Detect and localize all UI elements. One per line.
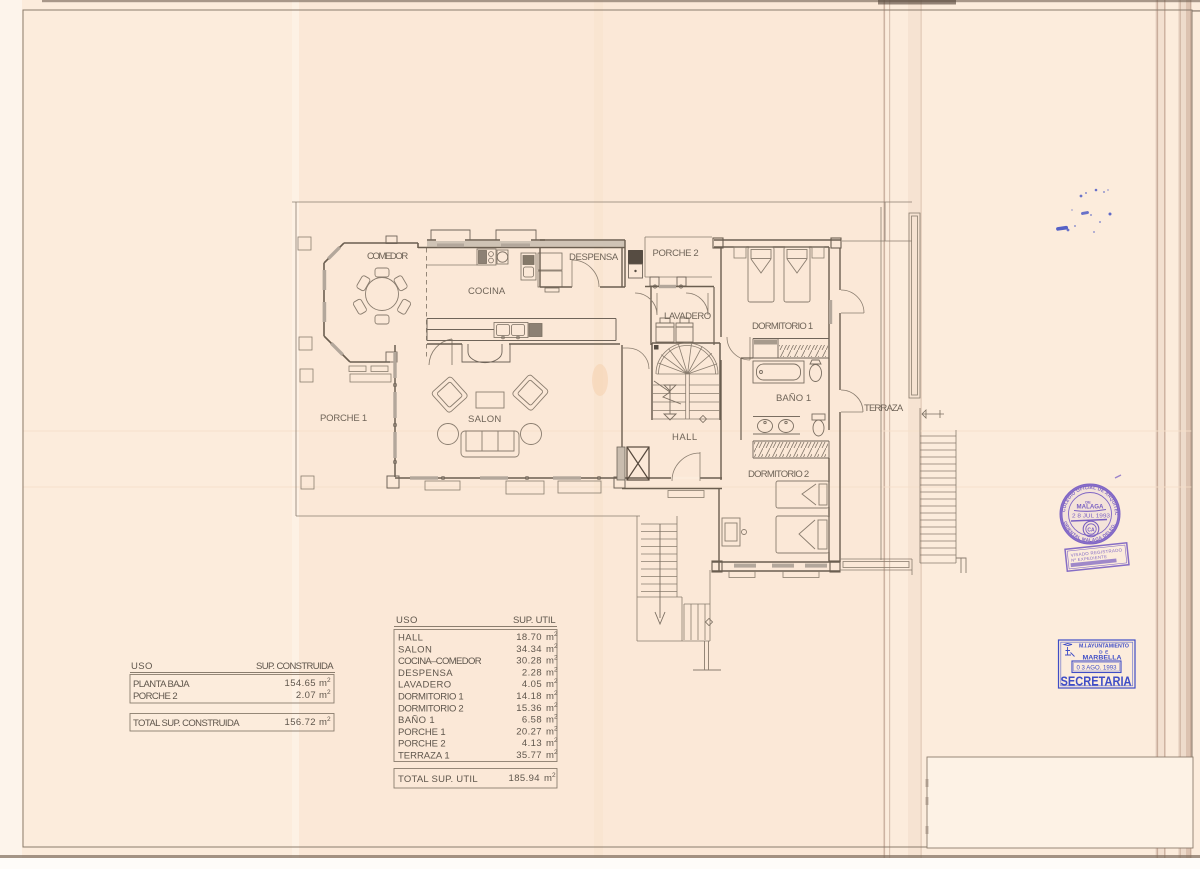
svg-text:COMEDOR: COMEDOR: [367, 251, 409, 262]
svg-text:2: 2: [327, 689, 331, 696]
svg-text:2: 2: [554, 725, 558, 732]
svg-text:2: 2: [554, 631, 558, 638]
svg-text:m: m: [546, 632, 554, 643]
svg-text:4.05: 4.05: [522, 679, 542, 690]
svg-text:15.36: 15.36: [516, 703, 542, 714]
svg-text:m: m: [546, 703, 554, 714]
svg-text:COCINA–COMEDOR: COCINA–COMEDOR: [398, 656, 482, 667]
svg-text:2: 2: [327, 716, 331, 723]
svg-text:PORCHE 1: PORCHE 1: [398, 727, 446, 738]
svg-text:18.70: 18.70: [516, 632, 542, 643]
svg-text:34.34: 34.34: [516, 644, 542, 655]
svg-text:m: m: [319, 717, 327, 728]
svg-text:TOTAL SUP. UTIL: TOTAL SUP. UTIL: [398, 774, 478, 785]
svg-text:35.77: 35.77: [516, 750, 542, 761]
svg-text:DESPENSA: DESPENSA: [398, 668, 453, 679]
svg-text:2: 2: [554, 737, 558, 744]
svg-text:m: m: [319, 678, 327, 689]
svg-text:m: m: [319, 690, 327, 701]
svg-text:m: m: [546, 656, 554, 667]
svg-text:2.28: 2.28: [522, 667, 542, 678]
svg-text:PORCHE 2: PORCHE 2: [398, 739, 446, 750]
svg-text:USO: USO: [131, 661, 153, 672]
svg-text:2.07: 2.07: [296, 690, 316, 701]
svg-text:SUP. CONSTRUIDA: SUP. CONSTRUIDA: [256, 661, 334, 672]
svg-text:m: m: [546, 679, 554, 690]
svg-text:m: m: [546, 738, 554, 749]
svg-text:156.72: 156.72: [285, 717, 316, 728]
svg-text:2: 2: [554, 690, 558, 697]
svg-text:TOTAL SUP. CONSTRUIDA: TOTAL SUP. CONSTRUIDA: [133, 718, 240, 729]
svg-text:2: 2: [327, 677, 331, 684]
svg-text:2: 2: [554, 714, 558, 721]
svg-text:PORCHE 2: PORCHE 2: [653, 248, 700, 259]
svg-text:DORMITORIO 1: DORMITORIO 1: [752, 321, 814, 332]
svg-text:2: 2: [554, 666, 558, 673]
svg-text:m: m: [544, 773, 552, 784]
svg-text:4.13: 4.13: [522, 738, 542, 749]
svg-text:SALON: SALON: [398, 644, 432, 655]
svg-text:0 3 AGO. 1993: 0 3 AGO. 1993: [1077, 665, 1118, 672]
svg-text:30.28: 30.28: [516, 656, 542, 667]
svg-text:m: m: [546, 667, 554, 678]
svg-text:PORCHE 1: PORCHE 1: [320, 413, 368, 424]
svg-text:DORMITORIO 1: DORMITORIO 1: [398, 692, 464, 703]
svg-text:TERRAZA: TERRAZA: [864, 403, 904, 414]
svg-text:185.94: 185.94: [509, 773, 540, 784]
svg-text:LAVADERO: LAVADERO: [398, 680, 452, 691]
svg-text:DORMITORIO 2: DORMITORIO 2: [748, 469, 810, 480]
svg-text:SECRETARIA: SECRETARIA: [1061, 675, 1132, 689]
svg-text:m: m: [546, 715, 554, 726]
svg-text:2: 2: [554, 702, 558, 709]
svg-text:BAÑO 1: BAÑO 1: [776, 393, 812, 404]
svg-text:2: 2: [554, 678, 558, 685]
svg-text:DESPENSA: DESPENSA: [569, 252, 619, 263]
svg-text:TERRAZA 1: TERRAZA 1: [398, 751, 450, 762]
svg-text:M.I.AYUNTAMIENTO: M.I.AYUNTAMIENTO: [1079, 644, 1129, 650]
svg-text:MALAGA: MALAGA: [1077, 505, 1105, 511]
svg-text:PORCHE 2: PORCHE 2: [133, 691, 178, 702]
svg-text:PLANTA BAJA: PLANTA BAJA: [133, 679, 190, 690]
svg-text:2: 2: [554, 643, 558, 650]
svg-text:m: m: [546, 750, 554, 761]
svg-text:20.27: 20.27: [516, 726, 542, 737]
svg-text:2 8 JUL 1993: 2 8 JUL 1993: [1072, 514, 1110, 520]
svg-text:BAÑO 1: BAÑO 1: [398, 715, 435, 726]
svg-text:HALL: HALL: [672, 432, 698, 443]
svg-text:m: m: [546, 691, 554, 702]
svg-text:154.65: 154.65: [285, 678, 316, 689]
svg-text:m: m: [546, 726, 554, 737]
svg-text:HALL: HALL: [398, 633, 423, 644]
svg-text:2: 2: [554, 749, 558, 756]
svg-text:14.18: 14.18: [516, 691, 542, 702]
svg-text:2: 2: [552, 772, 556, 779]
svg-text:COCINA: COCINA: [468, 286, 506, 297]
svg-text:DORMITORIO 2: DORMITORIO 2: [398, 703, 464, 714]
svg-text:USO: USO: [396, 615, 418, 626]
svg-text:SUP. UTIL: SUP. UTIL: [513, 615, 556, 626]
svg-text:SALON: SALON: [468, 414, 502, 425]
svg-text:m: m: [546, 644, 554, 655]
svg-text:LAVADERO: LAVADERO: [664, 311, 712, 322]
svg-text:2: 2: [554, 655, 558, 662]
svg-text:6.58: 6.58: [522, 715, 542, 726]
svg-text:CA: CA: [1087, 528, 1095, 534]
